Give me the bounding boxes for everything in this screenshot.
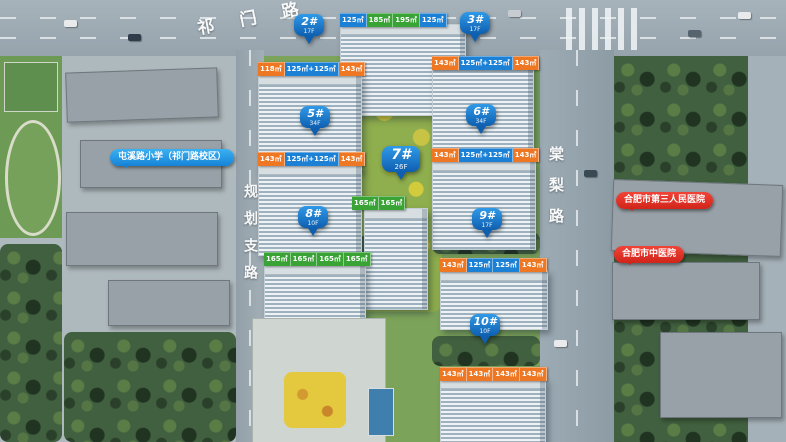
car — [738, 12, 751, 19]
unit-area-tag: 143㎡ — [493, 367, 520, 381]
building-3-unit-tags: 143㎡ 125㎡+125㎡ 143㎡ — [432, 56, 539, 70]
poi-school-bubble[interactable]: 屯溪路小学（祁门路校区） — [110, 149, 234, 166]
building-number: 3# — [460, 14, 490, 26]
car — [128, 34, 141, 41]
building-8-pin[interactable]: 8#10F — [298, 206, 328, 236]
building-number: 5# — [300, 108, 330, 120]
kindergarten-playground — [284, 372, 346, 428]
building-10-pin[interactable]: 10#10F — [470, 314, 500, 344]
unit-area-tag: 165㎡ — [344, 252, 371, 266]
unit-area-tag: 125㎡ — [420, 13, 447, 27]
unit-area-tag: 143㎡ — [513, 56, 540, 70]
floor-count: 17F — [472, 222, 502, 229]
car — [508, 10, 521, 17]
floor-count: 10F — [298, 220, 328, 227]
floor-count: 26F — [382, 163, 420, 171]
tennis-court — [4, 62, 58, 112]
unit-area-tag: 143㎡ — [520, 258, 547, 272]
unit-area-tag: 143㎡ — [467, 367, 494, 381]
unit-area-tag: 165㎡ — [317, 252, 344, 266]
floor-count: 17F — [294, 28, 324, 35]
crosswalk — [566, 8, 644, 50]
unit-area-tag: 195㎡ — [393, 13, 420, 27]
building-7-block — [364, 208, 428, 310]
unit-area-tag: 143㎡ — [339, 62, 366, 76]
floor-count: 10F — [470, 328, 500, 335]
unit-area-tag: 143㎡ — [513, 148, 540, 162]
school-building — [66, 212, 218, 266]
unit-area-tag: 143㎡ — [258, 152, 285, 166]
running-track — [5, 120, 61, 236]
sports-field — [0, 56, 62, 238]
unit-area-tag: 125㎡ — [467, 258, 494, 272]
unit-area-tag: 125㎡+125㎡ — [459, 56, 513, 70]
building-8-block — [264, 264, 366, 320]
road-name-right: 棠梨路 — [546, 146, 567, 239]
building-number: 9# — [472, 210, 502, 222]
school-building — [65, 67, 219, 122]
pin-tail — [476, 126, 486, 134]
unit-area-tag: 143㎡ — [339, 152, 366, 166]
building-8-unit-tags: 165㎡ 165㎡ 165㎡ 165㎡ — [264, 252, 371, 266]
unit-area-tag: 118㎡ — [258, 62, 285, 76]
unit-area-tag: 165㎡ — [352, 196, 379, 210]
car — [584, 170, 597, 177]
floor-count: 34F — [300, 120, 330, 127]
poi-hospital-1-bubble[interactable]: 合肥市第三人民医院 — [616, 192, 713, 209]
unit-area-tag: 125㎡+125㎡ — [285, 152, 339, 166]
hospital-building — [612, 262, 760, 320]
lane-marking — [576, 50, 578, 442]
building-9-pin[interactable]: 9#17F — [472, 208, 502, 238]
unit-area-tag: 125㎡ — [493, 258, 520, 272]
building-number: 6# — [466, 106, 496, 118]
building-10-unit-tags: 143㎡ 143㎡ 143㎡ 143㎡ — [440, 367, 547, 381]
building-7-unit-tags: 165㎡ 165㎡ — [352, 196, 405, 210]
pin-tail — [304, 36, 314, 44]
unit-area-tag: 165㎡ — [264, 252, 291, 266]
building-number: 10# — [470, 316, 500, 328]
building-7-pin[interactable]: 7#26F — [382, 146, 420, 180]
building-1-unit-tags: 125㎡ 185㎡ 195㎡ 125㎡ — [340, 13, 447, 27]
building-2-pin[interactable]: 2#17F — [294, 14, 324, 44]
unit-area-tag: 125㎡+125㎡ — [459, 148, 513, 162]
floor-count: 17F — [460, 26, 490, 33]
pin-tail — [480, 336, 490, 344]
school-building — [108, 280, 230, 326]
poi-hospital-2-bubble[interactable]: 合肥市中医院 — [614, 246, 684, 263]
pin-tail — [396, 172, 406, 180]
road-name-left: 规划支路 — [240, 184, 260, 292]
car — [554, 340, 567, 347]
building-2-unit-tags: 118㎡ 125㎡+125㎡ 143㎡ — [258, 62, 365, 76]
hospital-building — [660, 332, 782, 418]
tree-cluster — [64, 332, 236, 442]
building-5-unit-tags: 143㎡ 125㎡+125㎡ 143㎡ — [258, 152, 365, 166]
building-number: 7# — [382, 148, 420, 163]
unit-area-tag: 143㎡ — [440, 258, 467, 272]
unit-area-tag: 125㎡+125㎡ — [285, 62, 339, 76]
pin-tail — [470, 34, 480, 42]
unit-area-tag: 143㎡ — [440, 367, 467, 381]
unit-area-tag: 165㎡ — [291, 252, 318, 266]
unit-area-tag: 185㎡ — [367, 13, 394, 27]
unit-area-tag: 143㎡ — [520, 367, 547, 381]
right-road — [540, 50, 614, 442]
pin-tail — [310, 128, 320, 136]
building-6-unit-tags: 143㎡ 125㎡+125㎡ 143㎡ — [432, 148, 539, 162]
unit-area-tag: 143㎡ — [432, 148, 459, 162]
building-5-pin[interactable]: 5#34F — [300, 106, 330, 136]
building-10-block — [440, 378, 546, 442]
pin-tail — [482, 230, 492, 238]
tree-cluster — [0, 244, 62, 442]
car — [64, 20, 77, 27]
unit-area-tag: 125㎡ — [340, 13, 367, 27]
pin-tail — [308, 228, 318, 236]
building-number: 8# — [298, 208, 328, 220]
building-6-pin[interactable]: 6#34F — [466, 104, 496, 134]
kindergarten-court — [368, 388, 394, 436]
unit-area-tag: 165㎡ — [379, 196, 406, 210]
building-3-pin[interactable]: 3#17F — [460, 12, 490, 42]
building-9-unit-tags: 143㎡ 125㎡ 125㎡ 143㎡ — [440, 258, 547, 272]
car — [688, 30, 701, 37]
building-number: 2# — [294, 16, 324, 28]
unit-area-tag: 143㎡ — [432, 56, 459, 70]
aerial-site-map: 125㎡ 185㎡ 195㎡ 125㎡ 118㎡ 125㎡+125㎡ 143㎡ … — [0, 0, 786, 442]
floor-count: 34F — [466, 118, 496, 125]
